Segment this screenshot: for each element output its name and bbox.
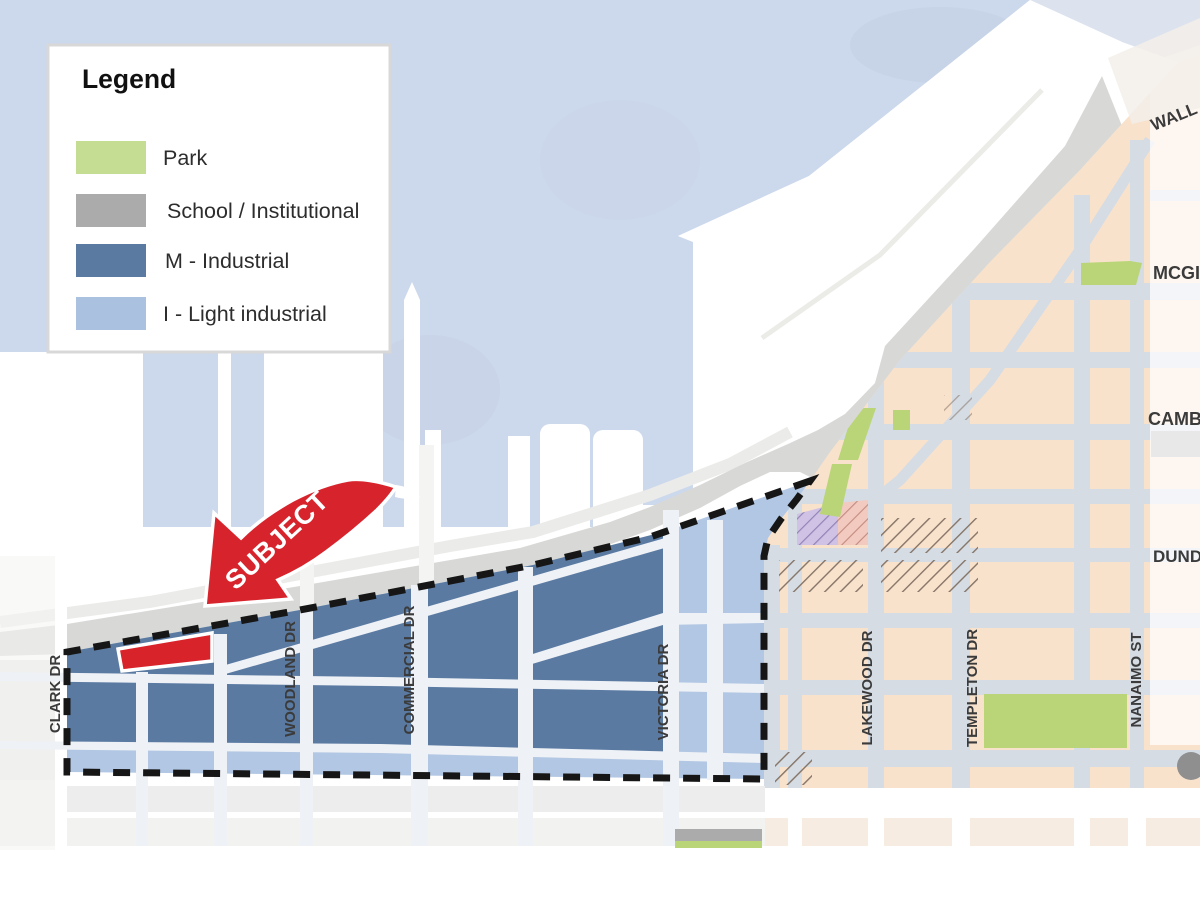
svg-text:Legend: Legend	[82, 64, 176, 94]
svg-text:Park: Park	[163, 146, 207, 170]
svg-text:COMMERCIAL DR: COMMERCIAL DR	[401, 605, 418, 734]
svg-text:CLARK DR: CLARK DR	[47, 655, 64, 733]
svg-text:M - Industrial: M - Industrial	[165, 249, 289, 273]
svg-text:LAKEWOOD DR: LAKEWOOD DR	[859, 630, 876, 745]
svg-text:WOODLAND DR: WOODLAND DR	[282, 621, 299, 737]
svg-text:VICTORIA DR: VICTORIA DR	[655, 644, 672, 741]
svg-text:TEMPLETON DR: TEMPLETON DR	[964, 629, 981, 747]
svg-text:CAMBRIDGE: CAMBRIDGE	[1148, 409, 1200, 429]
svg-text:MCGILL: MCGILL	[1153, 263, 1200, 283]
svg-text:DUNDAS: DUNDAS	[1153, 547, 1200, 566]
svg-text:NANAIMO ST: NANAIMO ST	[1128, 633, 1145, 728]
svg-text:I - Light industrial: I - Light industrial	[163, 302, 327, 326]
svg-text:School / Institutional: School / Institutional	[167, 199, 359, 223]
